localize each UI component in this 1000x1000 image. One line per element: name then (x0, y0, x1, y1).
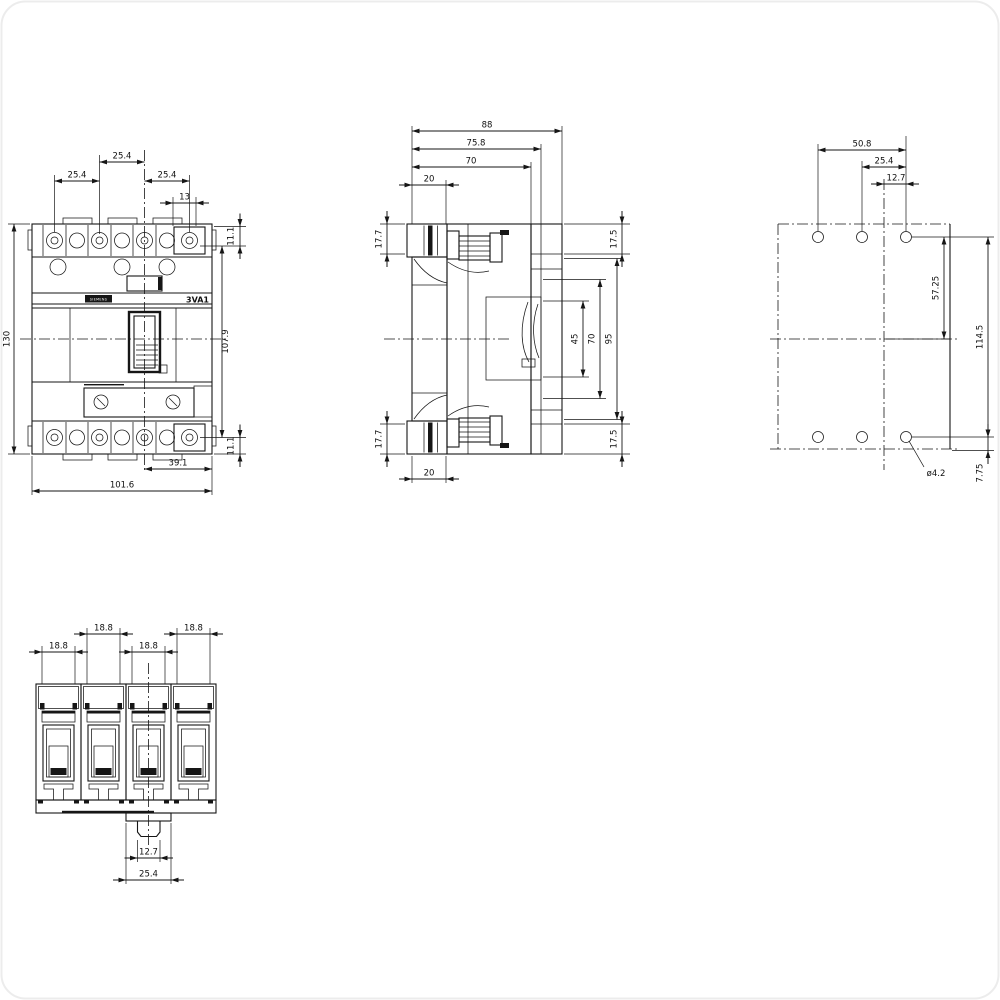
dim-hole-span-outer: 50.8 (853, 140, 872, 150)
mounting-holes (813, 232, 912, 443)
dim-hole-to-mid-height: 57.25 (932, 276, 942, 300)
bottom-view: 18.8 18.8 18.8 18.8 12.7 25.4 (29, 624, 223, 885)
rear-view: 50.8 25.4 12.7 57.25 114.5 7.75 ø4.2 (770, 136, 994, 482)
dim-front-step-top: 20 (424, 175, 435, 185)
dim-terminal-width: 13 (179, 193, 190, 203)
dim-pole-pitch-left: 25.4 (68, 171, 87, 181)
side-terminal-bottom (407, 406, 509, 454)
pole-module-2 (81, 684, 126, 800)
dim-pole-pitch-right: 25.4 (158, 171, 177, 181)
dim-screw-offset-top: 11.1 (227, 227, 237, 246)
side-terminal-top (407, 224, 509, 272)
dim-hole-span-vertical: 114.5 (976, 325, 986, 349)
dim-overall-height: 130 (3, 331, 13, 347)
dim-depth-rear-step: 75.8 (467, 139, 486, 149)
pole-module-4 (171, 684, 216, 800)
dim-pole4-width: 18.8 (184, 624, 203, 634)
terminal-screws-top (47, 233, 198, 249)
dim-hole-to-bottom-edge: 7.75 (976, 464, 986, 483)
product-label: 3VA1 (186, 296, 209, 305)
dimension-drawing: SIEMENS 3VA1 25.4 25.4 (0, 0, 1000, 1000)
dim-terminal-top-left: 17.7 (375, 230, 385, 249)
dim-overall-width: 101.6 (110, 481, 134, 491)
dim-cavity-70: 70 (588, 334, 598, 345)
dim-center-to-edge: 39.1 (169, 459, 188, 469)
rear-dimensions: 50.8 25.4 12.7 57.25 114.5 7.75 ø4.2 (818, 136, 994, 482)
dim-screw-offset-bottom: 11.1 (227, 437, 237, 456)
dim-pole3-width: 18.8 (139, 642, 158, 652)
dim-front-step-bottom: 20 (424, 469, 435, 479)
pole-module-1 (36, 684, 81, 800)
dimension-drawing-canvas: SIEMENS 3VA1 25.4 25.4 (0, 0, 1000, 1000)
dim-cavity-45: 45 (571, 334, 581, 345)
dim-hole-span-mid: 25.4 (875, 157, 894, 167)
dim-clip-outer: 25.4 (139, 870, 158, 880)
dim-clip-inner: 12.7 (139, 848, 158, 858)
dim-terminal-bottom-left: 17.7 (375, 430, 385, 449)
dim-hole-diameter: ø4.2 (927, 469, 946, 479)
side-view: 88 75.8 70 20 17.7 17.7 (375, 121, 631, 484)
dim-hole-to-centerline: 12.7 (887, 174, 906, 184)
brand-label: SIEMENS (90, 298, 108, 302)
dim-pole1-width: 18.8 (49, 642, 68, 652)
dim-pole-pitch-mid: 25.4 (113, 152, 132, 162)
rating-label (84, 388, 194, 417)
terminal-screws-bottom (47, 430, 198, 446)
dim-pole2-width: 18.8 (94, 624, 113, 634)
dim-terminal-top-right: 17.5 (610, 230, 620, 249)
dim-depth-body: 70 (466, 157, 477, 167)
front-view: SIEMENS 3VA1 25.4 25.4 (3, 150, 247, 495)
dim-terminal-bottom-right: 17.5 (610, 430, 620, 449)
dim-depth-overall: 88 (482, 121, 493, 131)
dim-rear-95: 95 (605, 334, 615, 345)
front-dimensions: 25.4 25.4 25.4 13 11.1 130 107.9 (3, 152, 247, 496)
dim-screw-span: 107.9 (221, 329, 231, 353)
base-feet (38, 801, 213, 804)
